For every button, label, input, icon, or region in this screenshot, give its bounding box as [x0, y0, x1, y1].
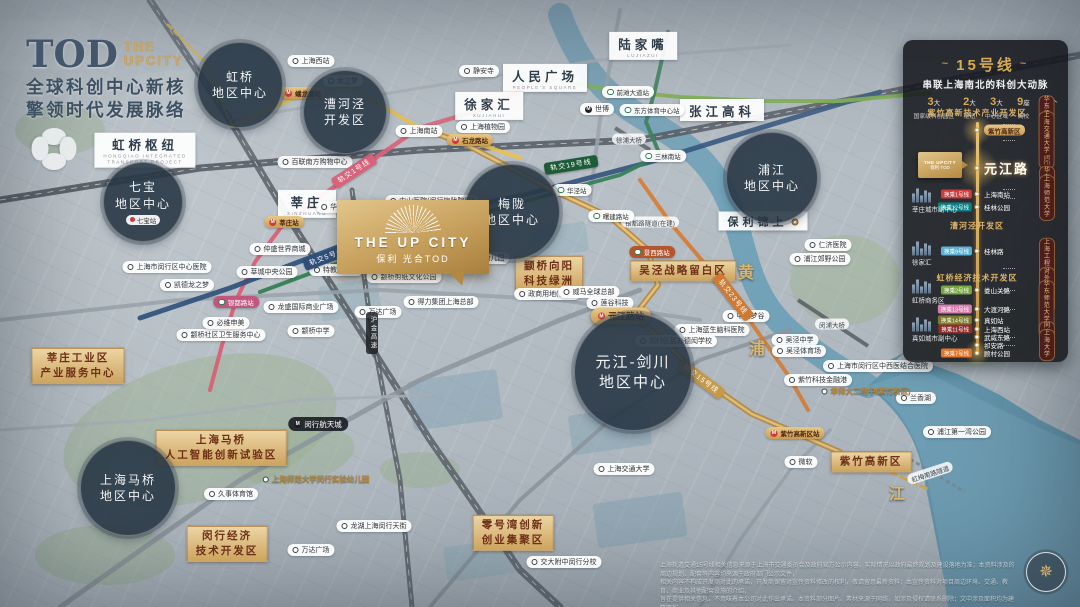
area-hongqiao-hub-cn: 虹桥枢纽 [103, 135, 186, 154]
transfer-换乘2号线: 换乘2号线 [941, 286, 972, 295]
zone-maqiao-ai-line2: 人工智能创新试验区 [165, 448, 278, 463]
station-zizhu-hitech: M紫竹高新区站 [766, 427, 825, 439]
zone-lingang-bay: 零号湾创新创业集聚区 [473, 515, 554, 551]
dot-icon [242, 269, 248, 275]
dot-icon [360, 309, 366, 315]
area-xujiahui-cn: 徐家汇 [464, 94, 514, 113]
dot-icon [263, 476, 269, 482]
ring-icon [607, 89, 614, 96]
station-dot-桂林路 [975, 249, 980, 254]
dot-icon [269, 304, 275, 310]
station-dot-娄山关路 [975, 288, 980, 293]
district-yuanjiang-jianchuan-line1: 元江-剑川 [595, 352, 670, 372]
district-pujiang: 浦江地区中心 [726, 132, 818, 224]
panel-city-虹桥商务区: 虹桥商务区 [912, 280, 945, 305]
dot-icon [464, 68, 470, 74]
poi-microsoft: 微软 [785, 456, 818, 468]
poi-wujing-stadium: 吴泾体育场 [772, 345, 826, 357]
poi-deli-hq: 得力集团上海总部 [404, 296, 479, 308]
dot-icon [293, 58, 299, 64]
poi-capitaland: 凯德龙之梦 [160, 279, 214, 291]
dot-icon [314, 267, 320, 273]
district-caohejing: 漕河泾开发区 [303, 70, 387, 154]
city-silhouette [912, 280, 945, 294]
river-label-jiang: 江 [889, 480, 905, 504]
panel-project-logo: THE UPCITY保利·TOD [918, 152, 962, 178]
mblack-icon: M [294, 421, 301, 428]
poi-wanda-plaza-2: 万达广场 [288, 544, 335, 556]
univ-name: 上海师范大学 [1044, 176, 1050, 219]
poi-jiaoda-affiliated-school: 交大附中闵行分校 [527, 556, 602, 568]
panel-header-3: 虹桥经济技术开发区 [937, 273, 1018, 284]
transfer-换乘7号线: 换乘7号线 [941, 349, 972, 358]
poi-pujiang-country-park: 浦江郊野公园 [790, 253, 851, 265]
panel-univ-上海师范大学: 上海师范大学 [1039, 175, 1055, 221]
poi-shanghai-west-station: 上海西站 [288, 55, 335, 67]
dot-icon [928, 429, 934, 435]
tod-map-poster: 虹桥地区中心漕河泾开发区七宝地区中心七宝站梅陇地区中心元江-剑川地区中心浦江地区… [0, 0, 1080, 607]
poi-shanghai-south-station: 上海南站 [396, 125, 443, 137]
city-silhouette [912, 242, 932, 256]
zone-minhang-etdz-line2: 技术开发区 [196, 544, 259, 559]
mred-icon: M [598, 313, 605, 320]
area-zhangjiang: 张江高科 [680, 99, 764, 121]
mred-icon: M [269, 219, 276, 226]
district-caohejing-line1: 漕河泾 [324, 96, 366, 112]
panel-city-莘庄城市副中心: 莘庄城市副中心 [912, 189, 958, 214]
dot-icon [461, 124, 467, 130]
panel-station-大渡河路: 大渡河路 [984, 304, 1010, 314]
poi-botanical-garden: 上海植物园 [456, 121, 510, 133]
poi-zhuanqiao-middle-school: 颛桥中学 [288, 325, 335, 337]
dot-icon [728, 313, 734, 319]
mblack-icon: M [585, 106, 592, 113]
dot-icon [342, 523, 348, 529]
station-huajing: 华泾站 [553, 184, 592, 196]
area-peoples-square: 人民广场PEOPLE'S SQUARE [503, 64, 587, 92]
area-xujiahui: 徐家汇XUJIAHUI [455, 92, 523, 120]
area-xujiahui-en1: XUJIAHUI [464, 113, 514, 119]
panel-title: 15号线 [903, 54, 1068, 75]
station-dot-武威东路 [975, 335, 980, 340]
station-dot-元江路 [975, 166, 980, 171]
panel-station-紫竹高新区: 紫竹高新区 [984, 125, 1025, 136]
district-pujiang-line1: 浦江 [758, 162, 786, 178]
ring-icon [218, 299, 225, 306]
brand-block: TOD THE UPCITY 全球科创中心新核 擎领时代发展脉络 [26, 38, 186, 122]
district-hongqiao-line1: 虹桥 [226, 69, 254, 85]
station-jingxilu: 景西路站 [629, 246, 675, 258]
poi-sjtu: 上海交通大学 [594, 463, 655, 475]
dot-icon [822, 388, 828, 394]
dot-icon [293, 328, 299, 334]
disclaimer-line-3: 旨在提供相关信息，不意味着本公司对此作出承诺。本资料部分图片、素材来源于网络，如… [660, 596, 1016, 607]
dot-icon [777, 337, 783, 343]
dot-icon [209, 491, 215, 497]
panel-subtitle: 串联上海南北的科创大动脉 [903, 77, 1068, 91]
dot-icon [828, 363, 834, 369]
dot-icon [564, 289, 570, 295]
poi-longfor-paradise: 龙湖上海闵行天街 [337, 520, 412, 532]
univ-name: 上海大学 [1044, 331, 1050, 360]
univ-connector [1003, 268, 1015, 269]
district-caohejing-line2: 开发区 [324, 112, 366, 128]
poi-jiushi-gym: 久事体育馆 [204, 488, 258, 500]
zone-lingang-bay-line2: 创业集聚区 [482, 533, 545, 548]
area-lujiazui-cn: 陆家嘴 [618, 34, 668, 53]
upcity-line1: THE [124, 40, 184, 54]
panel-station-上海南站: 上海南站 [984, 189, 1010, 199]
station-dot-紫竹高新区 [975, 128, 980, 133]
station-qiantan-ave: 前滩大道站 [602, 86, 654, 98]
district-qibao-line1: 七宝 [129, 179, 157, 195]
district-qibao: 七宝地区中心七宝站 [103, 162, 183, 242]
poi-bureau-veritas: 必维申美 [203, 317, 250, 329]
station-sanlin-south: 三林南站 [640, 150, 686, 162]
transfer-换乘13号线: 换乘13号线 [938, 305, 972, 314]
dot-icon [409, 299, 415, 305]
district-pujiang-line2: 地区中心 [744, 178, 800, 194]
mred-icon: M [771, 430, 778, 437]
panel-univ-上海交通大学: 上海交通大学(闵行) [1039, 111, 1055, 169]
panel-city-徐家汇: 徐家汇 [912, 242, 932, 267]
area-peoples-square-en1: PEOPLE'S SQUARE [512, 85, 578, 91]
dot-icon [208, 320, 214, 326]
project-name-en: THE UP CITY [355, 235, 472, 250]
compass-seal-icon: ✵ [1026, 552, 1066, 592]
dot-icon [165, 282, 171, 288]
poi-zhongsheng-mall: 仲盛世界商城 [250, 243, 311, 255]
univ-connector [1003, 345, 1015, 346]
disclaimer-line-1: 上海轨道交通15号线相关信息来源于上海市交通委员会及政府官方公示内容，实际情况以… [660, 562, 1016, 579]
station-oriental-sports-center: 东方体育中心站 [620, 104, 685, 116]
station-dot-上海南站 [975, 192, 980, 197]
panel-station-桂林路: 桂林路 [984, 246, 1004, 256]
ring-icon [625, 107, 632, 114]
area-lujiazui: 陆家嘴LUJIAZUI [609, 32, 677, 60]
station-dot-顾村公园 [975, 351, 980, 356]
district-maqiao: 上海马桥地区中心 [80, 440, 176, 536]
univ-name: 上海交通大学 [1044, 113, 1050, 156]
slogan-line2: 擎领时代发展脉络 [26, 100, 186, 122]
dot-icon [810, 242, 816, 248]
dot-icon [777, 348, 783, 354]
poi-hsd-no2-school: 华师大二附中(紫竹校区) [822, 386, 911, 397]
city-silhouette [912, 189, 958, 203]
upcity-line2: UPCITY [124, 54, 184, 68]
area-peoples-square-cn: 人民广场 [512, 66, 578, 85]
dot-icon [790, 459, 796, 465]
station-shujianlu: 曙建路站 [588, 210, 634, 222]
river-label-pu: 浦 [749, 335, 765, 359]
district-qibao-station-tag: 七宝站 [126, 215, 161, 225]
district-meilong-line1: 梅陇 [498, 196, 526, 212]
ring-icon [645, 153, 652, 160]
station-dot-桂林公园 [975, 205, 980, 210]
dot-icon [283, 159, 289, 165]
necc-clover-icon [28, 128, 84, 172]
city-silhouette [912, 318, 958, 332]
poi-wanda-plaza-1: 万达广场 [355, 306, 402, 318]
dot-icon [532, 559, 538, 565]
zone-minhang-etdz: 闵行经济技术开发区 [187, 526, 268, 562]
dot-icon [795, 256, 801, 262]
panel-station-顾村公园: 顾村公园 [984, 348, 1010, 358]
station-shilonglu: M石龙路站 [447, 134, 493, 146]
disclaimer-line-2: 相关内容不构成开发商对此的承诺，开发商保留对宣传资料修改的权利，敬请留意最新资料… [660, 579, 1016, 596]
poi-minhang-aerospace-city: M闵行航天城 [288, 417, 348, 431]
univ-name: 华东师范大学 [1044, 282, 1050, 325]
district-maqiao-line2: 地区中心 [100, 488, 156, 504]
project-name-cn: 保利 光合TOD [376, 252, 449, 265]
district-hongqiao-line2: 地区中心 [212, 85, 268, 101]
poi-longsheng-plaza: 龙盛国际商业广场 [264, 301, 339, 313]
line15-info-panel: 15号线 串联上海南北的科创大动脉 3大国家级科创园区2大枢纽3大中心区域9座高… [903, 40, 1068, 362]
dot-icon [255, 246, 261, 252]
poi-bailian-mall: 百联南方购物中心 [278, 156, 353, 168]
zone-xinzhuang-industry: 莘庄工业区产业服务中心 [32, 348, 125, 384]
tod-wordmark: TOD [26, 38, 118, 71]
dot-icon [293, 547, 299, 553]
panel-station-桂林公园: 桂林公园 [984, 202, 1010, 212]
mred-icon: M [452, 137, 459, 144]
zone-maqiao-ai-line1: 上海马桥 [165, 433, 278, 448]
zone-zhuanqiao-xiangyang-line1: 颛桥向阳 [524, 259, 574, 274]
panel-header-2: 漕河泾开发区 [950, 221, 1004, 232]
dot-icon [372, 274, 378, 280]
district-maqiao-line1: 上海马桥 [100, 472, 156, 488]
panel-station-娄山关路: 娄山关路 [984, 285, 1010, 295]
station-xinzhuang: M莘庄站 [264, 216, 304, 228]
dot-icon [128, 264, 134, 270]
ring-icon [558, 187, 565, 194]
zone-minhang-etdz-line1: 闵行经济 [196, 529, 259, 544]
poi-zhuanqiao-clinic: 颛桥社区卫生服务中心 [177, 329, 266, 341]
zone-lingang-bay-line1: 零号湾创新 [482, 518, 545, 533]
district-yuanjiang-jianchuan: 元江-剑川地区中心 [574, 313, 692, 431]
poi-zizhu-finance-harbor: 紫竹科技金融港 [784, 374, 852, 386]
univ-connector [1003, 140, 1015, 141]
district-qibao-line2: 地区中心 [115, 196, 171, 212]
dot-icon [401, 128, 407, 134]
panel-city-真如城市副中心: 真如城市副中心 [912, 318, 958, 343]
ring-icon [634, 249, 641, 256]
slogan-line1: 全球科创中心新核 [26, 77, 186, 99]
project-logo: THE UP CITY 保利 光合TOD [337, 200, 489, 274]
district-meilong-line2: 地区中心 [484, 212, 540, 228]
dot-icon [321, 204, 327, 210]
label-minpu-bridge: 闵浦大桥 [815, 319, 849, 330]
area-lujiazui-en1: LUJIAZUI [618, 53, 668, 59]
river-label-huang: 黄 [738, 259, 754, 283]
poi-jingansi: 静安寺 [459, 65, 499, 77]
poi-minhang-central-hospital: 上海市闵行区中心医院 [123, 261, 212, 273]
zone-maqiao-ai: 上海马桥人工智能创新试验区 [156, 430, 287, 466]
dot-icon [182, 332, 188, 338]
panel-logo-cn: 保利·TOD [930, 165, 949, 171]
upcity-wordmark: THE UPCITY [124, 40, 184, 67]
area-zhangjiang-cn: 张江高科 [689, 101, 755, 120]
station-dot-真如站 [975, 318, 980, 323]
dot-icon [789, 377, 795, 383]
zone-zizhu-hitech: 紫竹高新区 [831, 451, 912, 472]
zone-xinzhuang-industry-line1: 莘庄工业区 [41, 351, 116, 366]
panel-station-元江路: 元江路 [984, 159, 1029, 178]
poi-renji-hospital: 仁济医院 [805, 239, 852, 251]
station-yindulu: 银都路站 [213, 296, 259, 308]
district-yuanjiang-jianchuan-line2: 地区中心 [599, 372, 667, 392]
district-hongqiao: 虹桥地区中心 [197, 42, 283, 128]
label-xupu-bridge: 徐浦大桥 [612, 134, 646, 145]
mred-icon: M [285, 90, 292, 97]
zone-zizhu-hitech-line1: 紫竹高新区 [840, 454, 903, 469]
zone-xinzhuang-industry-line2: 产业服务中心 [41, 366, 116, 381]
station-dot-上海西站 [975, 327, 980, 332]
poi-shnu-kindergarten: 上海师范大学闵行实验幼儿园 [263, 474, 370, 485]
sunburst-icon [385, 205, 441, 233]
road-label-hujin-expressway: 沪金高速 [366, 312, 378, 354]
dot-icon [592, 300, 598, 306]
station-dot-大渡河路 [975, 307, 980, 312]
transfer-换乘9号线: 换乘9号线 [941, 247, 972, 256]
dot-icon [519, 291, 525, 297]
disclaimer-text: 上海轨道交通15号线相关信息来源于上海市交通委员会及政府官方公示内容，实际情况以… [660, 562, 1016, 607]
poi-xincheng-park: 莘城中央公园 [237, 266, 298, 278]
ring-icon [593, 213, 600, 220]
dot-icon [680, 327, 686, 333]
poi-expo: M世博 [580, 103, 614, 115]
station-dot-祁安路 [975, 343, 980, 348]
poi-first-bay-park: 浦江第一湾公园 [923, 426, 991, 438]
panel-univ-上海大学: 上海大学 [1039, 329, 1055, 361]
dot-icon [599, 466, 605, 472]
